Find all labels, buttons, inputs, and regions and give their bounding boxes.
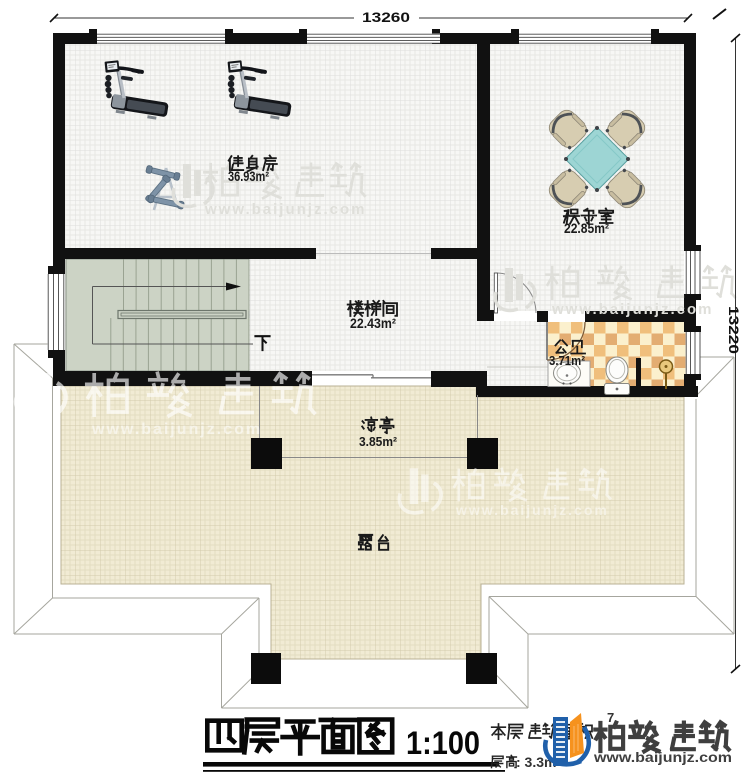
svg-text:3.85m²: 3.85m² (359, 434, 398, 449)
svg-text:www.baijunjz.com: www.baijunjz.com (455, 502, 609, 518)
svg-text:13260: 13260 (362, 9, 410, 25)
svg-text:3.71m²: 3.71m² (549, 353, 586, 368)
svg-text:22.85m²: 22.85m² (564, 220, 609, 236)
svg-text:www.baijunjz.com: www.baijunjz.com (91, 421, 262, 438)
svg-text:1:100: 1:100 (406, 725, 480, 761)
svg-text:36.93m²: 36.93m² (228, 168, 269, 184)
svg-text:www.baijunjz.com: www.baijunjz.com (551, 301, 713, 318)
svg-text:7: 7 (607, 710, 614, 725)
svg-text:13220: 13220 (726, 306, 742, 354)
svg-text:www.baijunjz.com: www.baijunjz.com (593, 750, 732, 765)
svg-text:www.baijunjz.com: www.baijunjz.com (204, 201, 366, 218)
svg-text:22.43m²: 22.43m² (350, 315, 396, 331)
